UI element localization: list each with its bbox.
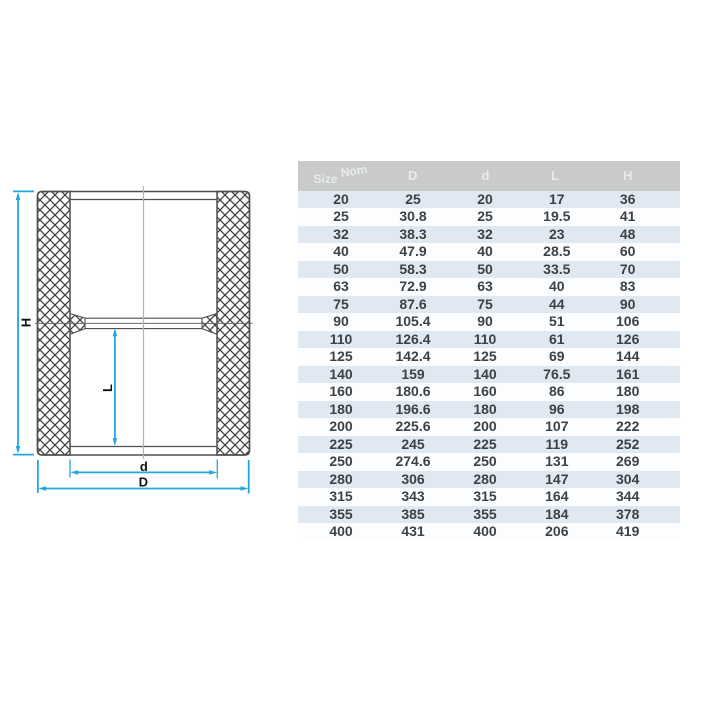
svg-text:d: d — [140, 459, 148, 474]
svg-text:L: L — [100, 384, 115, 392]
svg-text:H: H — [19, 318, 34, 327]
svg-text:D: D — [139, 475, 148, 490]
